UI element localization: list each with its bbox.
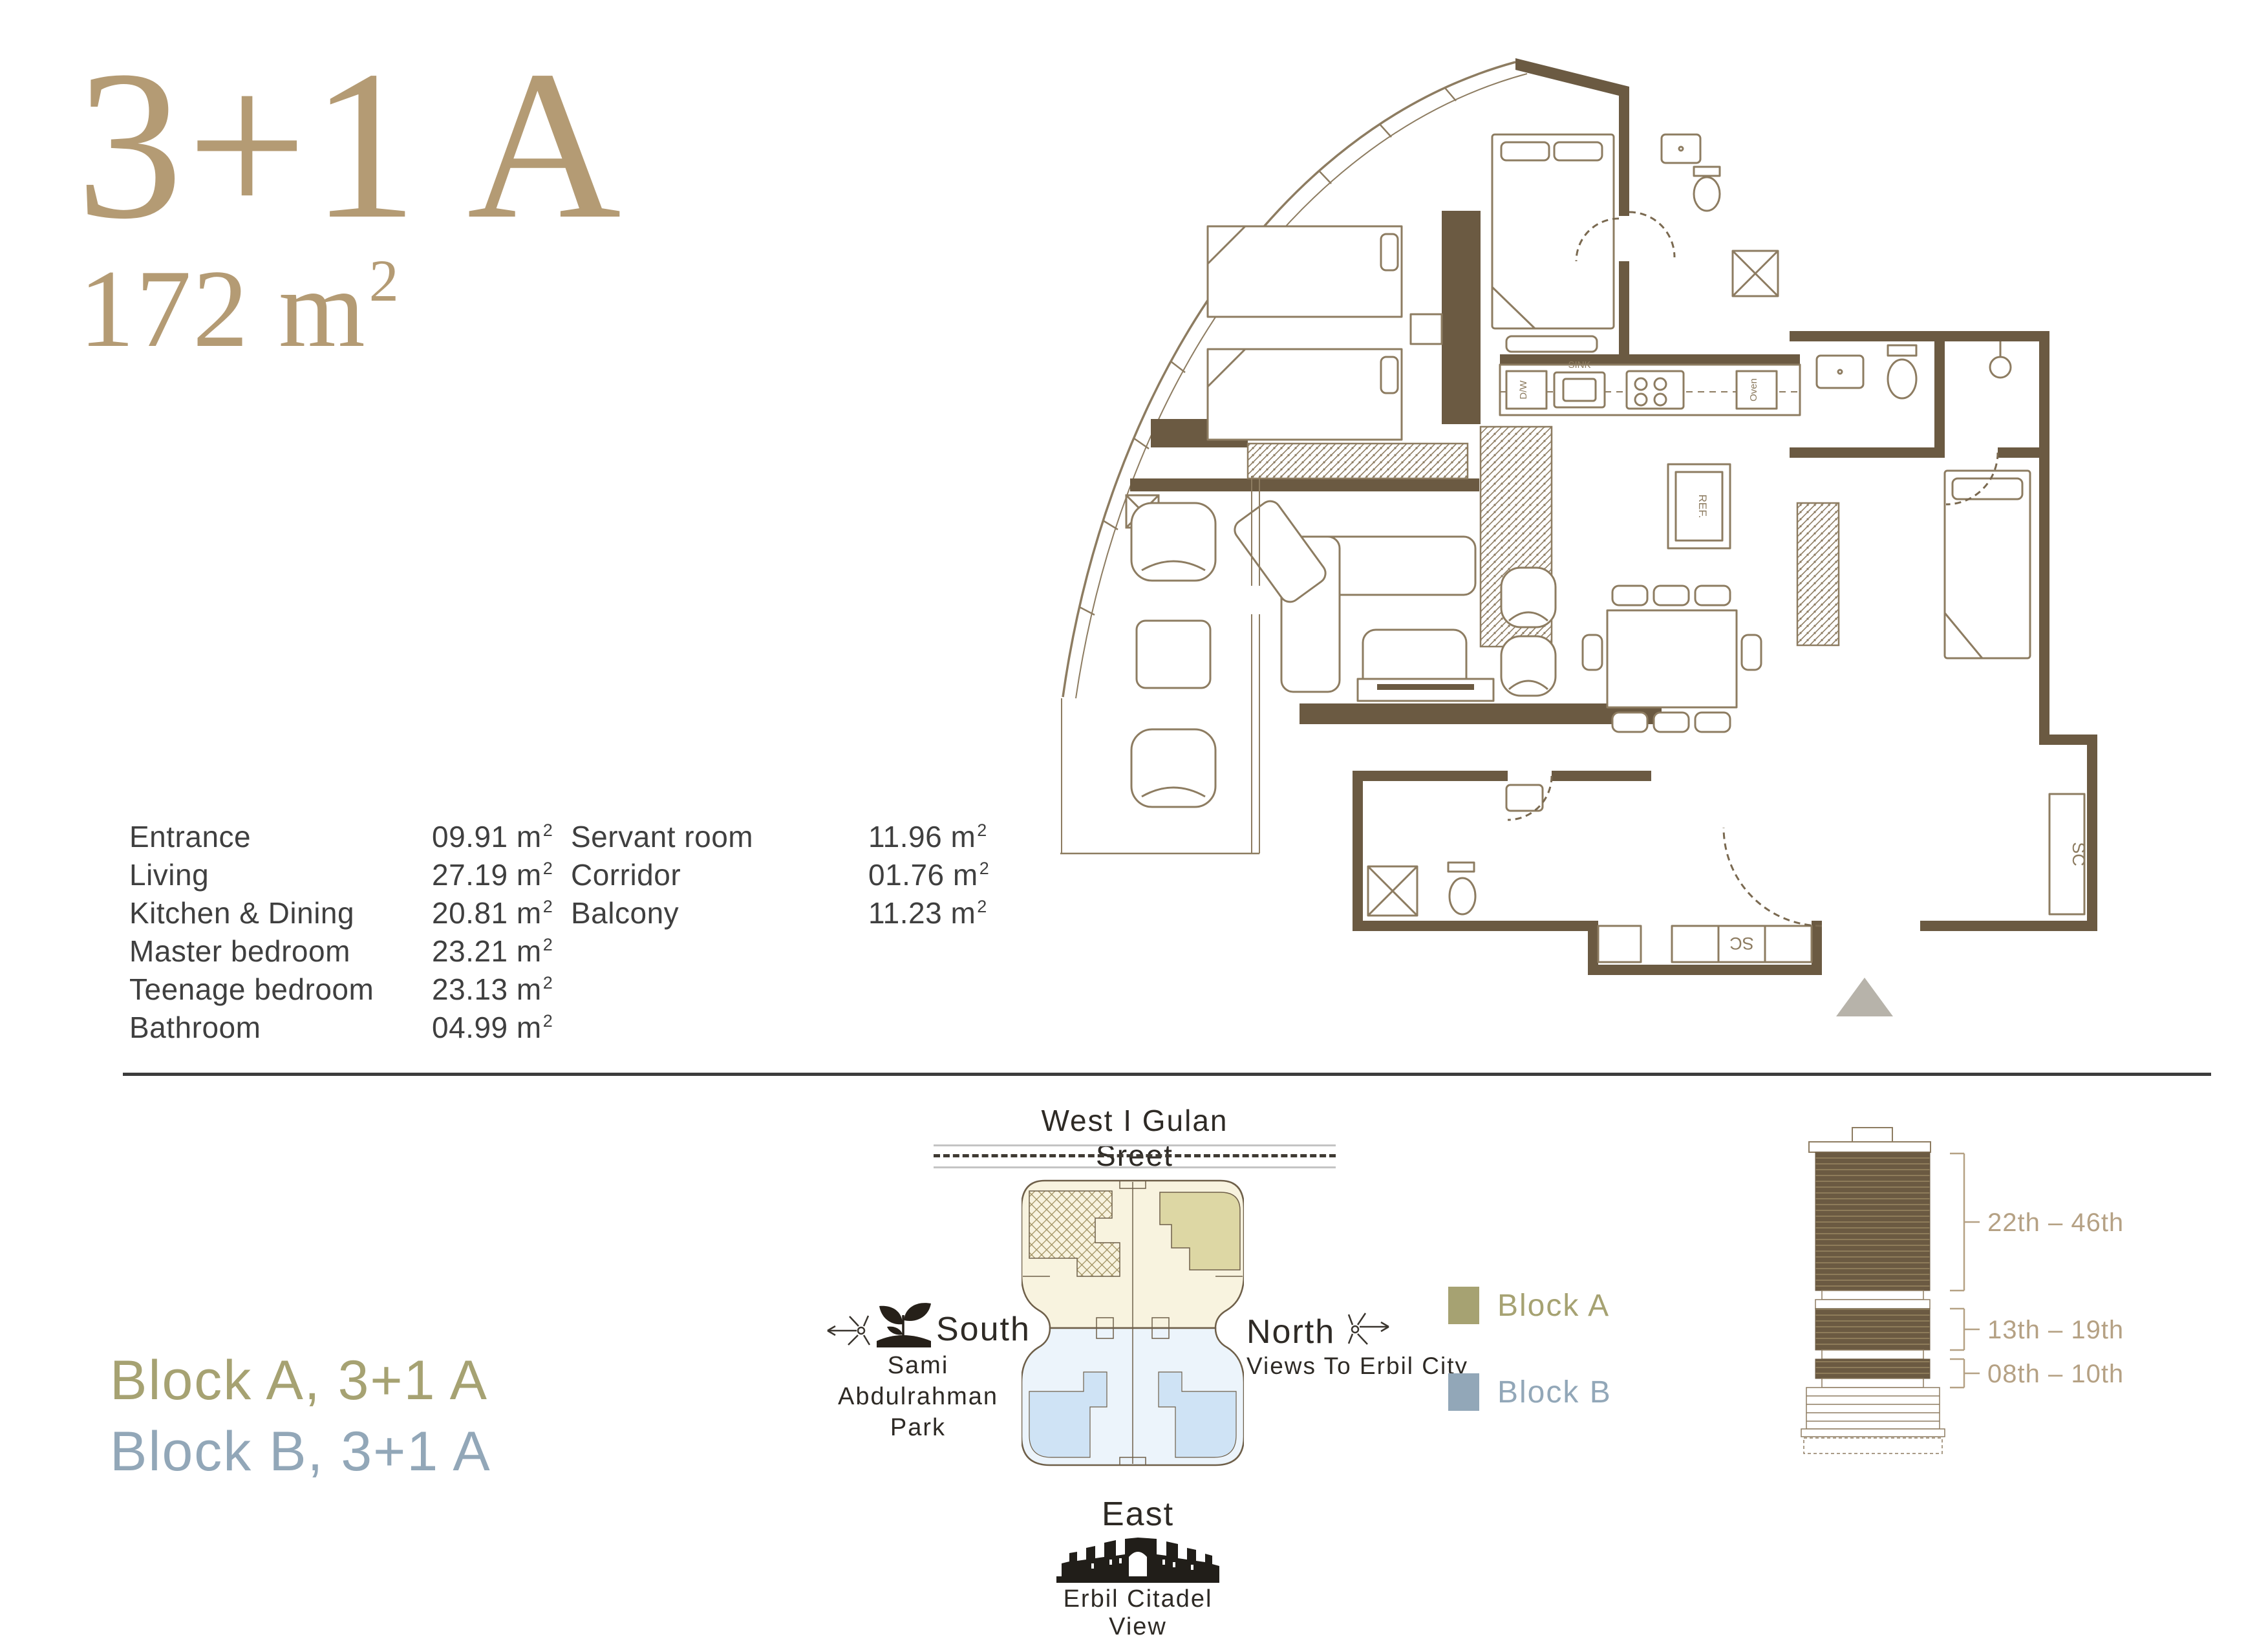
shoe-closet bbox=[1598, 926, 1812, 962]
east-label: East bbox=[1073, 1495, 1203, 1534]
room-label: Kitchen & Dining bbox=[129, 896, 432, 930]
floor-range-label: 13th – 19th bbox=[1987, 1316, 2124, 1344]
room-value: 20.81 m2 bbox=[432, 896, 553, 930]
road-line bbox=[934, 1144, 1336, 1146]
room-label: Entrance bbox=[129, 819, 432, 854]
floor-plan: SINK Oven D/W REF. SC SC bbox=[1054, 57, 2114, 1053]
room-value: 01.76 m2 bbox=[868, 857, 989, 892]
oven-label: Oven bbox=[1748, 378, 1759, 402]
room-value: 27.19 m2 bbox=[432, 857, 553, 892]
fridge-label: REF. bbox=[1696, 495, 1709, 519]
armchair bbox=[1501, 636, 1556, 696]
compass-arrow-left-icon bbox=[821, 1313, 872, 1349]
room-row: Corridor01.76 m2 bbox=[571, 855, 1023, 894]
room-value: 23.21 m2 bbox=[432, 934, 553, 969]
unit-area-value: 172 m bbox=[79, 248, 367, 370]
ensuite-fixtures bbox=[1662, 134, 1778, 296]
citadel-icon bbox=[1053, 1534, 1223, 1585]
room-value: 11.23 m2 bbox=[868, 896, 987, 930]
tower-outline bbox=[1809, 1128, 1931, 1152]
room-list-right: Servant room11.96 m2 Corridor01.76 m2 Ba… bbox=[571, 817, 1023, 932]
legend-block-a: Block A bbox=[1448, 1287, 1610, 1324]
room-value: 09.91 m2 bbox=[432, 819, 553, 854]
room-row: Teenage bedroom23.13 m2 bbox=[129, 970, 582, 1008]
sink-label: SINK bbox=[1568, 359, 1590, 370]
sc-label: SC bbox=[2069, 842, 2088, 866]
room-list-left: Entrance09.91 m2 Living27.19 m2 Kitchen … bbox=[129, 817, 582, 1046]
east-sublabel: Erbil Citadel View bbox=[1034, 1585, 1241, 1641]
room-label: Living bbox=[129, 857, 432, 892]
room-label: Corridor bbox=[571, 857, 868, 892]
room-value: 04.99 m2 bbox=[432, 1010, 553, 1045]
room-label: Teenage bedroom bbox=[129, 972, 432, 1007]
room-label: Master bedroom bbox=[129, 934, 432, 969]
floor-range-label: 08th – 10th bbox=[1987, 1360, 2124, 1388]
block-a-label: Block A bbox=[1497, 1288, 1610, 1324]
twin-bed bbox=[1208, 349, 1402, 440]
dishwasher-label: D/W bbox=[1518, 380, 1529, 400]
leaf-plant-icon bbox=[874, 1297, 934, 1351]
compass-arrow-right-icon bbox=[1346, 1310, 1393, 1349]
south-sub-line2: Park bbox=[808, 1412, 1028, 1443]
room-label: Bathroom bbox=[129, 1010, 432, 1045]
armchair bbox=[1501, 568, 1556, 627]
floors-band-middle bbox=[1815, 1309, 1930, 1350]
unit-area-exponent: 2 bbox=[369, 248, 400, 314]
bathroom-fixtures bbox=[1368, 785, 1543, 916]
street-label: West I Gulan Sreet bbox=[1004, 1103, 1265, 1173]
block-b-label: Block B bbox=[1497, 1375, 1612, 1410]
sc-label: SC bbox=[1729, 934, 1754, 953]
block-b-swatch bbox=[1448, 1373, 1479, 1411]
room-row: Master bedroom23.21 m2 bbox=[129, 932, 582, 970]
balcony bbox=[1060, 476, 1259, 853]
building-elevation: 22th – 46th 13th – 19th 08th – 10th bbox=[1797, 1124, 2179, 1460]
floors-band-lower bbox=[1815, 1359, 1930, 1378]
tv-console bbox=[1358, 679, 1493, 701]
road-dashed-line bbox=[934, 1154, 1336, 1157]
room-row: Entrance09.91 m2 bbox=[129, 817, 582, 855]
north-sublabel: Views To Erbil City bbox=[1246, 1353, 1468, 1380]
unit-area: 172 m2 bbox=[79, 253, 398, 365]
tower-base bbox=[1801, 1388, 1945, 1437]
room-label: Servant room bbox=[571, 819, 868, 854]
twin-bed bbox=[1208, 226, 1402, 317]
room-row: Servant room11.96 m2 bbox=[571, 817, 1023, 855]
tower-basement-dashed bbox=[1804, 1438, 1942, 1453]
servant-bathroom-fixtures bbox=[1817, 341, 2011, 398]
floor-brackets bbox=[1950, 1153, 1980, 1388]
south-label: South bbox=[936, 1310, 1031, 1349]
floor-range-label: 22th – 46th bbox=[1987, 1208, 2124, 1237]
south-sub-line1: Sami Abdulrahman bbox=[808, 1350, 1028, 1412]
site-plan bbox=[1022, 1179, 1244, 1466]
north-label: North bbox=[1246, 1313, 1335, 1351]
room-value: 11.96 m2 bbox=[868, 819, 987, 854]
servant-bed bbox=[1945, 471, 2030, 658]
room-row: Living27.19 m2 bbox=[129, 855, 582, 894]
road-line bbox=[934, 1166, 1336, 1168]
entrance-arrow bbox=[1836, 978, 1893, 1016]
section-divider bbox=[123, 1073, 2211, 1076]
page-title: 3+1 A bbox=[76, 39, 625, 252]
room-row: Kitchen & Dining20.81 m2 bbox=[129, 894, 582, 932]
room-row: Balcony11.23 m2 bbox=[571, 894, 1023, 932]
master-bed bbox=[1492, 134, 1614, 352]
legend-block-b: Block B bbox=[1448, 1373, 1612, 1411]
room-label: Balcony bbox=[571, 896, 868, 930]
room-row: Bathroom04.99 m2 bbox=[129, 1008, 582, 1046]
nightstand bbox=[1411, 314, 1442, 344]
block-b-title: Block B, 3+1 A bbox=[110, 1420, 491, 1484]
south-sublabel: Sami Abdulrahman Park bbox=[808, 1350, 1028, 1443]
floors-band-upper bbox=[1815, 1152, 1930, 1291]
block-a-title: Block A, 3+1 A bbox=[110, 1349, 488, 1413]
block-a-swatch bbox=[1448, 1287, 1479, 1324]
room-value: 23.13 m2 bbox=[432, 972, 553, 1007]
